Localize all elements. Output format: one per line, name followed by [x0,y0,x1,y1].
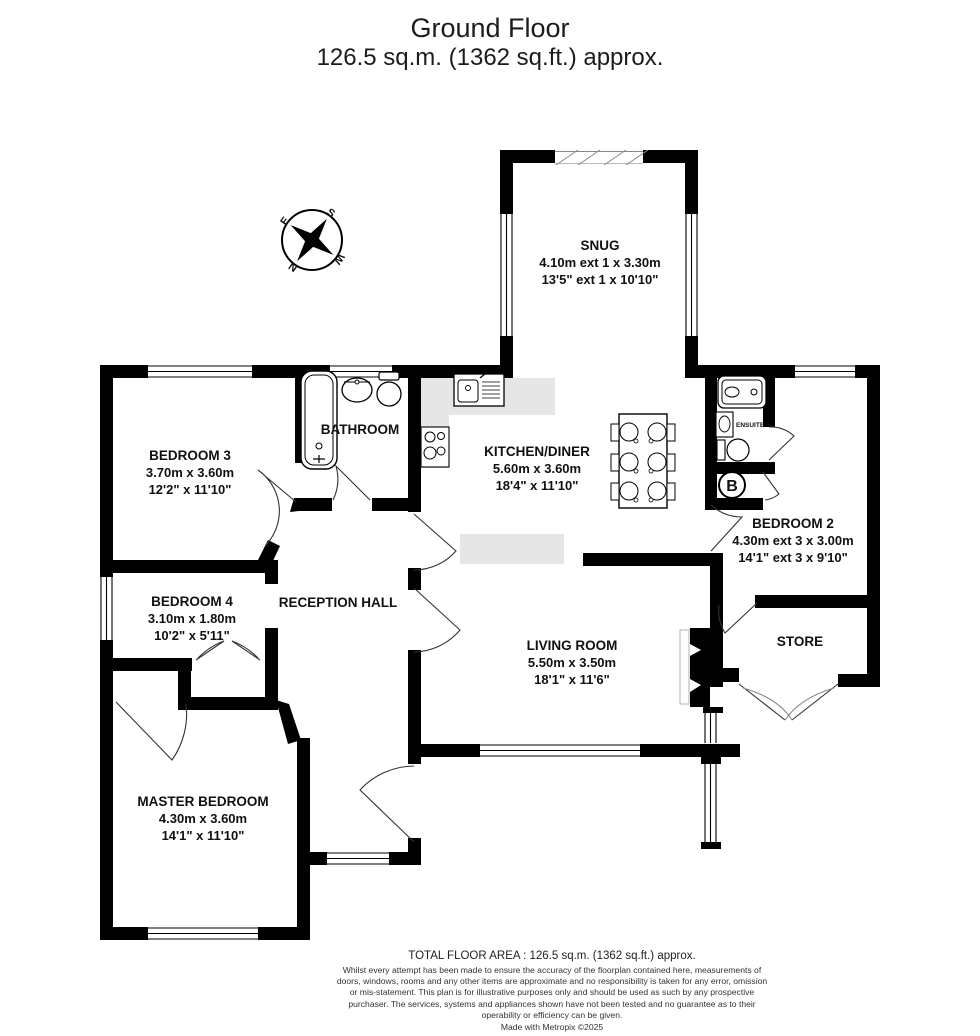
label-master-bedroom: MASTER BEDROOM 4.30m x 3.60m 14'1" x 11'… [137,794,268,843]
disclaimer-text: Whilst every attempt has been made to en… [336,965,768,1021]
floorplan-drawing: S W N E [0,0,980,1036]
svg-text:4.30m x 3.60m: 4.30m x 3.60m [159,811,247,826]
svg-text:KITCHEN/DINER: KITCHEN/DINER [484,444,590,459]
toilet-icon [377,372,401,406]
compass-icon: S W N E [278,206,346,273]
kitchen-door [414,514,456,570]
bedroom4-double-doors [196,641,260,660]
svg-text:3.10m x 1.80m: 3.10m x 1.80m [148,611,236,626]
compass-n: N [287,259,300,273]
svg-text:10'2" x 5'11": 10'2" x 5'11" [154,628,230,643]
svg-text:18'4" x 11'10": 18'4" x 11'10" [496,478,579,493]
svg-text:4.10m ext 1 x 3.30m: 4.10m ext 1 x 3.30m [539,255,660,270]
window [685,214,698,336]
boiler-cupboard-door [763,472,779,500]
svg-text:5.50m x 3.50m: 5.50m x 3.50m [528,655,616,670]
living-room-door [414,588,460,652]
ensuite-sink-icon [716,412,733,437]
boiler-symbol: B [719,472,745,498]
ensuite-bath-icon [718,376,766,408]
footer: TOTAL FLOOR AREA : 126.5 sq.m. (1362 sq.… [252,950,852,1032]
chimney-breast [680,628,710,707]
svg-text:STORE: STORE [777,634,823,649]
label-bedroom4: BEDROOM 4 3.10m x 1.80m 10'2" x 5'11" [148,594,236,643]
svg-text:BATHROOM: BATHROOM [321,422,400,437]
ensuite-fixtures [716,376,766,461]
label-snug: SNUG 4.10m ext 1 x 3.30m 13'5" ext 1 x 1… [539,238,660,287]
bedroom3-door [258,470,296,545]
svg-text:3.70m x 3.60m: 3.70m x 3.60m [146,465,234,480]
total-floor-area: TOTAL FLOOR AREA : 126.5 sq.m. (1362 sq.… [252,950,852,962]
compass-e: E [278,215,292,228]
label-ensuite: ENSUITE [736,422,765,429]
sink-icon [342,378,372,402]
window [480,744,640,757]
window [500,214,513,336]
dining-table-icon [611,414,675,508]
bathtub-icon [301,371,337,469]
svg-text:SNUG: SNUG [580,238,619,253]
svg-text:18'1" x 11'6": 18'1" x 11'6" [534,672,610,687]
boiler-letter: B [726,478,738,495]
bifold-doors [555,150,648,165]
svg-text:BEDROOM 3: BEDROOM 3 [149,448,231,463]
window [795,365,855,378]
label-living-room: LIVING ROOM 5.50m x 3.50m 18'1" x 11'6" [527,638,618,687]
credit-text: Made with Metropix ©2025 [252,1022,852,1032]
svg-text:BEDROOM 2: BEDROOM 2 [752,516,834,531]
svg-text:13'5" ext 1 x 10'10": 13'5" ext 1 x 10'10" [542,272,659,287]
window [703,707,723,743]
window [148,365,252,378]
svg-text:RECEPTION HALL: RECEPTION HALL [279,595,398,610]
store-door [719,603,757,633]
bathroom-door [333,466,370,500]
label-bathroom: BATHROOM [321,422,400,437]
svg-text:12'2" x 11'10": 12'2" x 11'10" [149,482,232,497]
window [327,852,389,865]
svg-text:ENSUITE: ENSUITE [736,422,765,429]
svg-text:LIVING ROOM: LIVING ROOM [527,638,618,653]
bathroom-fixtures [301,371,401,469]
kitchen-sink-icon [454,373,504,406]
ensuite-door [769,427,794,460]
compass-s: S [324,206,337,220]
label-bedroom2: BEDROOM 2 4.30m ext 3 x 3.00m 14'1" ext … [732,516,853,565]
label-store: STORE [777,634,823,649]
ensuite-toilet-icon [717,439,749,461]
label-reception-hall: RECEPTION HALL [279,595,398,610]
label-kitchen: KITCHEN/DINER 5.60m x 3.60m 18'4" x 11'1… [484,444,590,493]
hob-icon [421,427,449,467]
window [701,757,721,849]
svg-text:4.30m ext 3 x 3.00m: 4.30m ext 3 x 3.00m [732,533,853,548]
floorplan-page: Ground Floor 126.5 sq.m. (1362 sq.ft.) a… [0,0,980,1036]
svg-text:MASTER BEDROOM: MASTER BEDROOM [137,794,268,809]
garden-door [360,766,414,842]
svg-text:14'1" x 11'10": 14'1" x 11'10" [162,828,245,843]
window [100,577,113,640]
window [148,927,258,940]
compass-w: W [330,251,346,267]
svg-text:BEDROOM 4: BEDROOM 4 [151,594,233,609]
svg-text:5.60m x 3.60m: 5.60m x 3.60m [493,461,581,476]
label-bedroom3: BEDROOM 3 3.70m x 3.60m 12'2" x 11'10" [146,448,234,497]
svg-text:14'1" ext 3 x 9'10": 14'1" ext 3 x 9'10" [738,550,848,565]
master-bedroom-door [116,702,187,760]
store-double-doors [739,684,838,720]
